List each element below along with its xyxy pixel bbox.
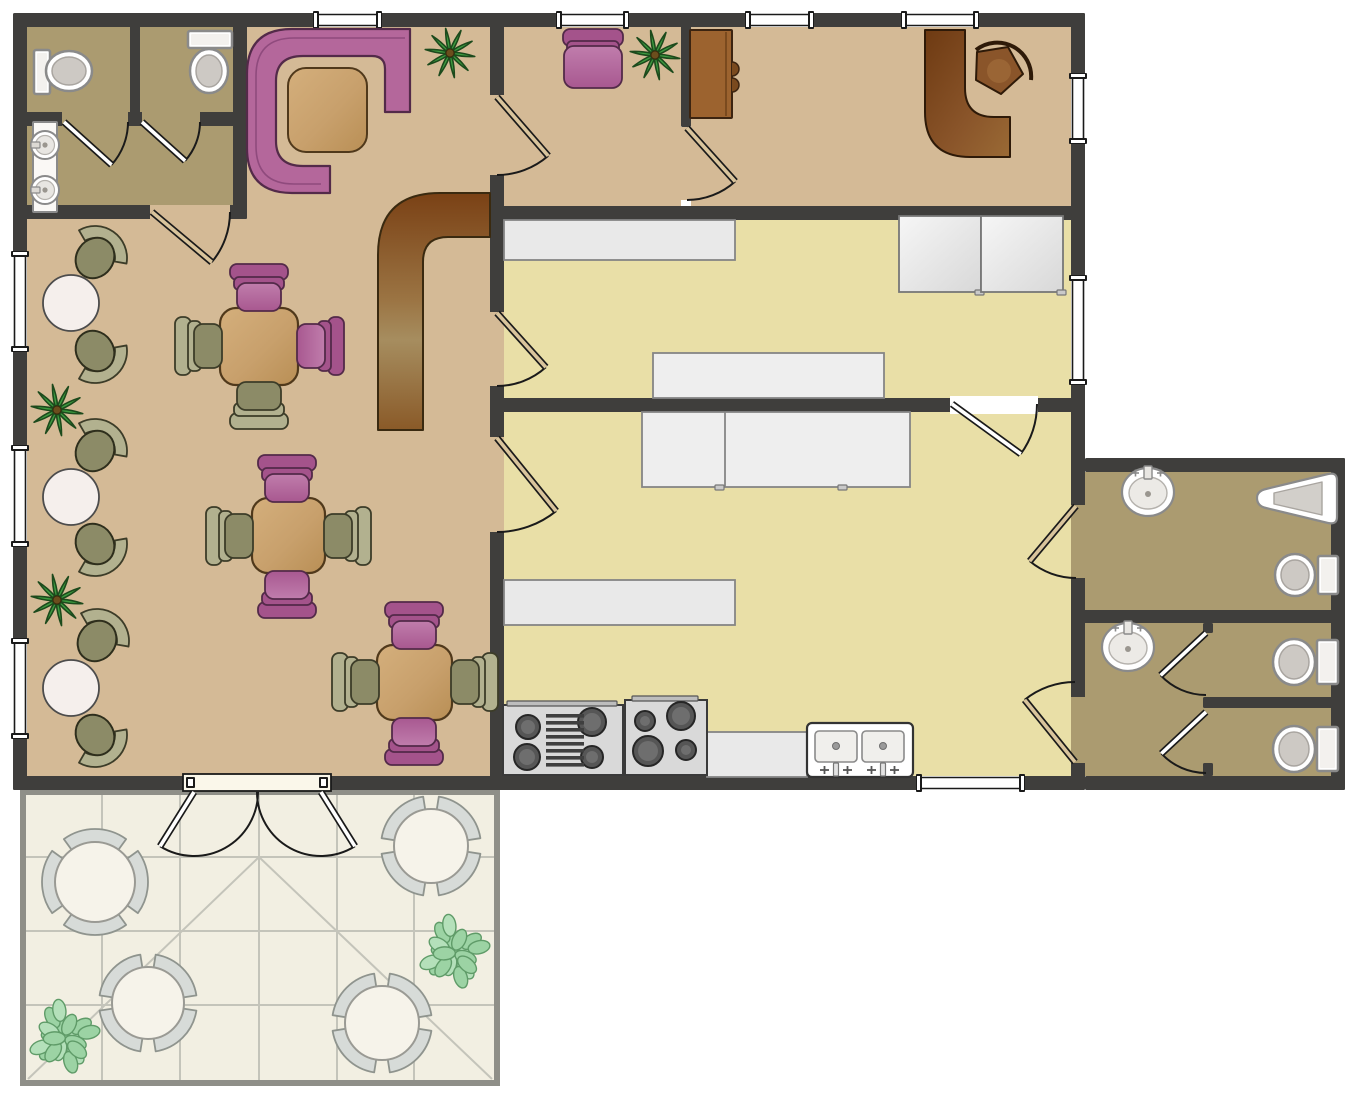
kitchen-counter xyxy=(707,732,807,777)
bathroom-sink xyxy=(1122,466,1174,516)
dining-chair xyxy=(206,507,253,565)
restroom-stall-divider xyxy=(130,13,140,119)
wc-stall-stub-b xyxy=(1203,763,1213,776)
toilet xyxy=(188,31,232,93)
doorway-opening xyxy=(681,127,691,200)
wc-stall-partition xyxy=(1203,697,1345,708)
doorway-opening xyxy=(1071,505,1085,578)
dining-chair xyxy=(230,264,288,311)
dining-chair xyxy=(258,455,316,502)
annex-top-wall xyxy=(1085,458,1345,472)
kitchen-counter xyxy=(504,580,735,625)
patio-table-set xyxy=(382,797,481,896)
kitchen-cabinet xyxy=(981,216,1066,295)
toilet xyxy=(34,50,92,94)
bathroom-sink xyxy=(1102,621,1154,671)
range-with-griddle xyxy=(503,701,623,775)
patio-door-frame xyxy=(183,774,331,791)
window xyxy=(745,11,814,29)
floor-plan-canvas xyxy=(0,0,1363,1100)
dining-table xyxy=(377,645,452,720)
patio-table-set xyxy=(100,955,197,1052)
window xyxy=(11,638,29,739)
dining-table xyxy=(220,308,298,385)
booth-table xyxy=(288,68,367,152)
dining-chair xyxy=(258,571,316,618)
window xyxy=(916,774,1025,792)
kitchen-counter xyxy=(504,220,735,260)
toilet xyxy=(1273,639,1338,685)
window xyxy=(1069,73,1087,144)
toilet xyxy=(1275,554,1338,596)
window xyxy=(901,11,979,29)
window xyxy=(11,251,29,352)
dining-table xyxy=(252,498,325,573)
kitchen-island xyxy=(642,412,910,490)
cabinet xyxy=(690,30,739,118)
dining-chair xyxy=(230,382,288,429)
doorway-opening xyxy=(142,112,200,126)
dining-chair xyxy=(451,653,498,711)
doorway-opening xyxy=(62,112,128,126)
floor-plan-page xyxy=(0,0,1363,1100)
doorway-opening xyxy=(1071,697,1085,763)
kitchen-island xyxy=(653,353,884,398)
window xyxy=(313,11,382,29)
window xyxy=(556,11,629,29)
kitchen-cabinet xyxy=(899,216,984,295)
window xyxy=(11,445,29,547)
annex-divider-wall xyxy=(1078,610,1345,623)
dining-chair xyxy=(385,718,443,765)
annex-bottom-wall xyxy=(1085,776,1345,790)
toilet xyxy=(1273,726,1338,772)
window xyxy=(1069,275,1087,385)
doorway-opening xyxy=(490,437,504,532)
wash-basin-console xyxy=(31,122,59,212)
dining-chair xyxy=(297,317,344,375)
double-sink xyxy=(807,723,913,777)
dining-chair xyxy=(385,602,443,649)
dining-chair xyxy=(324,507,371,565)
dining-chair xyxy=(332,653,379,711)
office-room-floor xyxy=(691,27,1071,206)
armchair xyxy=(563,29,623,88)
patio-table-set xyxy=(333,974,432,1073)
dining-chair xyxy=(175,317,222,375)
four-burner-range xyxy=(625,696,707,775)
